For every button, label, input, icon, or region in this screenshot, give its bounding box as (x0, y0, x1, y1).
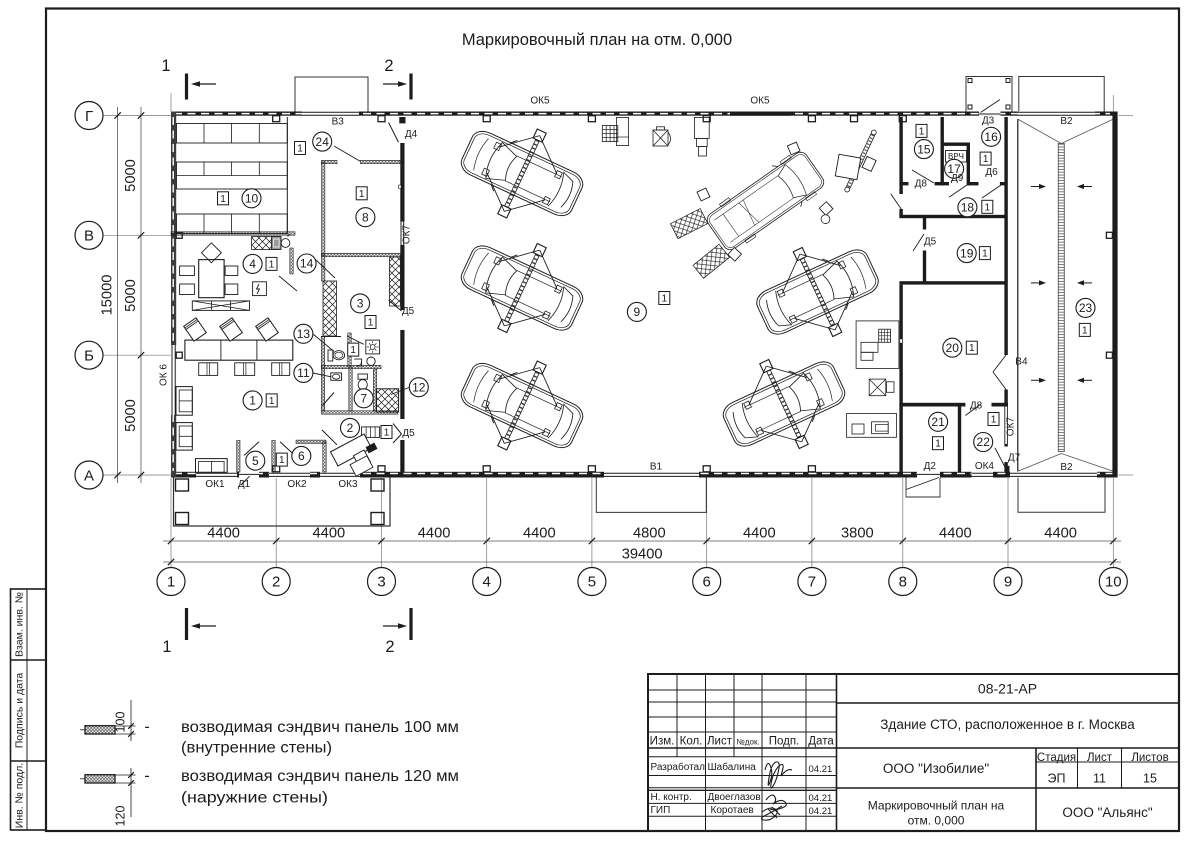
svg-text:15: 15 (917, 142, 931, 156)
svg-text:-: - (144, 768, 149, 785)
svg-text:Г: Г (85, 108, 93, 125)
svg-text:Лист: Лист (707, 736, 733, 748)
svg-text:1: 1 (359, 189, 365, 200)
svg-text:Д6: Д6 (985, 167, 998, 178)
svg-text:А: А (84, 467, 94, 484)
svg-text:Д2: Д2 (924, 461, 937, 472)
svg-text:1: 1 (167, 574, 175, 591)
svg-text:1: 1 (982, 249, 988, 260)
svg-text:ОК3: ОК3 (338, 479, 358, 490)
svg-text:04.21: 04.21 (809, 806, 833, 817)
svg-text:1: 1 (1082, 325, 1088, 336)
svg-text:22: 22 (977, 435, 991, 449)
svg-text:1: 1 (350, 345, 356, 356)
svg-text:4400: 4400 (523, 526, 556, 542)
svg-text:10: 10 (245, 192, 259, 206)
svg-text:10: 10 (1105, 574, 1122, 591)
svg-text:08-21-АР: 08-21-АР (978, 681, 1037, 697)
svg-text:19: 19 (960, 246, 974, 260)
svg-text:В4: В4 (1015, 357, 1028, 368)
svg-text:Д9: Д9 (951, 173, 964, 184)
svg-text:18: 18 (961, 201, 975, 215)
svg-text:11: 11 (1093, 772, 1106, 786)
svg-text:5000: 5000 (123, 159, 139, 192)
svg-text:ОК5: ОК5 (750, 96, 770, 107)
svg-text:Кол.: Кол. (680, 736, 703, 748)
svg-text:Д8: Д8 (970, 401, 983, 412)
svg-text:1: 1 (269, 396, 275, 407)
svg-text:Подп.: Подп. (769, 736, 800, 748)
svg-text:Д5: Д5 (402, 306, 415, 317)
svg-text:6: 6 (298, 449, 305, 463)
svg-text:возводимая сэндвич панель 120: возводимая сэндвич панель 120 мм (181, 768, 459, 785)
svg-text:1: 1 (220, 194, 226, 205)
svg-text:Д8: Д8 (915, 179, 928, 190)
svg-text:2: 2 (272, 574, 280, 591)
svg-text:20: 20 (946, 341, 960, 355)
svg-text:4800: 4800 (633, 526, 666, 542)
svg-text:ОК4: ОК4 (975, 461, 995, 472)
svg-text:23: 23 (1079, 301, 1093, 315)
svg-text:Д4: Д4 (405, 129, 418, 140)
svg-text:16: 16 (984, 130, 998, 144)
svg-text:Изм.: Изм. (650, 736, 675, 748)
svg-text:ООО "Альянс": ООО "Альянс" (1062, 805, 1152, 820)
svg-text:Здание СТО, расположенное в г.: Здание СТО, расположенное в г. Москва (880, 717, 1135, 732)
svg-text:4400: 4400 (313, 526, 346, 542)
svg-text:4400: 4400 (743, 526, 776, 542)
svg-text:4400: 4400 (1044, 526, 1077, 542)
svg-text:12: 12 (412, 380, 426, 394)
svg-text:ЭП: ЭП (1048, 772, 1066, 786)
svg-text:Маркировочный план на отм. 0,0: Маркировочный план на отм. 0,000 (462, 31, 732, 49)
svg-text:15: 15 (1143, 772, 1157, 786)
svg-text:Н. контр.: Н. контр. (651, 792, 692, 803)
svg-text:4: 4 (483, 574, 491, 591)
svg-text:1: 1 (249, 394, 256, 408)
svg-text:7: 7 (808, 574, 816, 591)
svg-text:Инв. № подл.: Инв. № подл. (14, 763, 26, 828)
svg-text:9: 9 (634, 305, 641, 319)
svg-text:120: 120 (114, 806, 128, 827)
svg-text:ОК1: ОК1 (205, 479, 225, 490)
svg-text:Б: Б (84, 348, 94, 365)
svg-text:отм. 0,000: отм. 0,000 (908, 814, 965, 828)
svg-text:2: 2 (384, 57, 393, 75)
svg-text:2: 2 (385, 638, 394, 656)
svg-text:Взам. инв. №: Взам. инв. № (14, 592, 26, 657)
svg-text:Д5: Д5 (402, 428, 415, 439)
svg-text:ОК2: ОК2 (287, 479, 307, 490)
svg-text:1: 1 (269, 259, 275, 270)
svg-text:Д1: Д1 (238, 479, 251, 490)
svg-text:15000: 15000 (100, 275, 116, 316)
svg-text:14: 14 (300, 257, 314, 271)
svg-text:1: 1 (161, 57, 170, 75)
svg-text:2: 2 (347, 421, 354, 435)
svg-text:4400: 4400 (207, 526, 240, 542)
svg-text:24: 24 (316, 135, 330, 149)
svg-text:Коротаев: Коротаев (711, 805, 754, 816)
svg-text:возводимая сэндвич панель 100: возводимая сэндвич панель 100 мм (181, 719, 459, 736)
svg-text:ОК7: ОК7 (1006, 417, 1017, 437)
svg-text:1: 1 (935, 439, 941, 450)
svg-text:Лист: Лист (1087, 752, 1113, 764)
svg-text:Подпись и дата: Подпись и дата (14, 673, 26, 749)
svg-text:Д5: Д5 (924, 237, 937, 248)
svg-text:4400: 4400 (418, 526, 451, 542)
svg-text:1: 1 (662, 294, 668, 305)
svg-text:39400: 39400 (622, 547, 663, 563)
svg-text:-: - (144, 719, 149, 736)
svg-text:Дата: Дата (808, 736, 834, 748)
svg-text:Двоеглазов: Двоеглазов (708, 792, 761, 803)
svg-text:1: 1 (985, 202, 991, 213)
svg-text:Д7: Д7 (1008, 453, 1021, 464)
svg-text:(внутренние стены): (внутренние стены) (181, 740, 332, 757)
svg-text:В1: В1 (650, 462, 663, 473)
svg-text:1: 1 (919, 126, 925, 137)
svg-text:7: 7 (360, 392, 367, 406)
svg-text:ОК5: ОК5 (530, 96, 550, 107)
svg-text:3: 3 (377, 574, 385, 591)
svg-text:ООО "Изобилие": ООО "Изобилие" (883, 761, 989, 776)
svg-text:ГИП: ГИП (651, 805, 671, 816)
svg-text:1: 1 (162, 638, 171, 656)
svg-text:ОК 6: ОК 6 (159, 364, 170, 386)
svg-text:21: 21 (931, 415, 945, 429)
svg-text:1: 1 (297, 144, 303, 155)
svg-text:Листов: Листов (1131, 752, 1168, 764)
svg-text:8: 8 (362, 210, 369, 224)
svg-text:В2: В2 (1060, 462, 1073, 473)
svg-text:Шабалина: Шабалина (708, 761, 757, 773)
svg-text:4400: 4400 (939, 526, 972, 542)
svg-text:100: 100 (114, 712, 128, 733)
svg-text:04.21: 04.21 (809, 764, 833, 775)
svg-text:3800: 3800 (841, 526, 874, 542)
svg-text:11: 11 (297, 366, 310, 380)
svg-text:№док.: №док. (736, 738, 759, 747)
svg-text:Разработал: Разработал (651, 761, 706, 773)
svg-text:5: 5 (588, 574, 596, 591)
svg-text:9: 9 (1004, 574, 1012, 591)
svg-text:1: 1 (279, 455, 285, 466)
svg-text:1: 1 (969, 343, 975, 354)
svg-text:04.21: 04.21 (809, 793, 833, 804)
svg-text:8: 8 (899, 574, 907, 591)
svg-text:5000: 5000 (123, 399, 139, 432)
svg-text:1: 1 (991, 415, 997, 426)
svg-text:Маркировочный план на: Маркировочный план на (868, 799, 1005, 813)
svg-text:3: 3 (357, 297, 364, 311)
svg-text:В: В (84, 228, 94, 245)
svg-text:В3: В3 (332, 117, 345, 128)
svg-text:(наружние стены): (наружние стены) (181, 790, 328, 807)
svg-text:Стадия: Стадия (1037, 752, 1076, 764)
svg-text:1: 1 (384, 428, 390, 439)
svg-text:1: 1 (983, 154, 989, 165)
svg-text:5: 5 (252, 454, 259, 468)
svg-text:5000: 5000 (123, 279, 139, 312)
svg-text:ОК7: ОК7 (402, 224, 413, 244)
svg-text:1: 1 (368, 318, 374, 329)
svg-text:В2: В2 (1060, 116, 1073, 127)
svg-text:13: 13 (297, 327, 311, 341)
svg-text:6: 6 (703, 574, 711, 591)
svg-text:4: 4 (249, 257, 256, 271)
svg-text:Д3: Д3 (982, 116, 995, 127)
